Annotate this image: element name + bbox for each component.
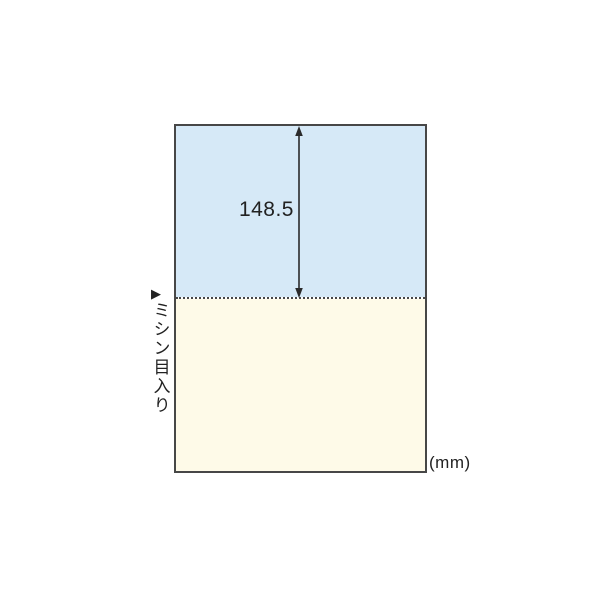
dimension-arrow bbox=[292, 126, 306, 298]
paper-sheet-diagram: 148.5 ▶ ミシン目入り (mm) bbox=[0, 0, 600, 600]
perforation-annotation: ▶ ミシン目入り bbox=[148, 287, 172, 415]
dimension-label: 148.5 bbox=[176, 198, 294, 221]
arrowhead-up-icon bbox=[295, 126, 303, 136]
perforation-label: ミシン目入り bbox=[152, 301, 169, 415]
unit-label: (mm) bbox=[429, 453, 471, 473]
sheet-bottom-half bbox=[176, 299, 425, 471]
right-triangle-icon: ▶ bbox=[151, 287, 161, 300]
arrowhead-down-icon bbox=[295, 288, 303, 298]
